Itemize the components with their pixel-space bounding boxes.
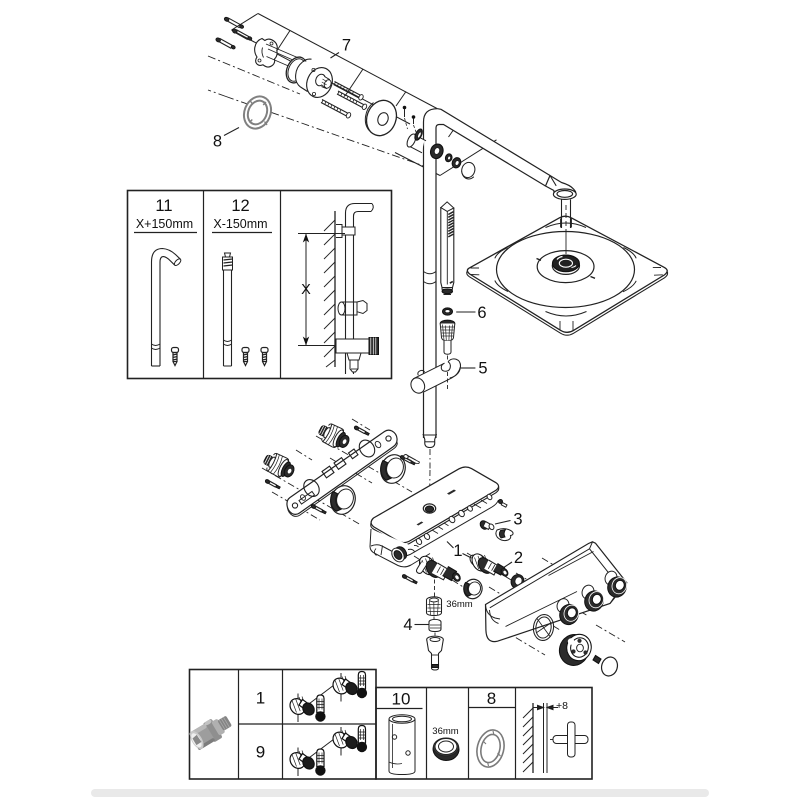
svg-text:+8: +8 (556, 700, 568, 712)
svg-text:10: 10 (392, 690, 411, 709)
svg-text:36mm: 36mm (446, 599, 472, 610)
svg-text:7: 7 (342, 37, 351, 55)
svg-text:4: 4 (403, 616, 412, 634)
svg-text:1: 1 (256, 689, 265, 708)
svg-text:2: 2 (514, 549, 523, 567)
svg-text:9: 9 (256, 743, 265, 762)
svg-text:12: 12 (231, 197, 249, 215)
svg-text:X+150mm: X+150mm (136, 217, 193, 231)
svg-text:1: 1 (453, 542, 462, 560)
svg-text:8: 8 (487, 689, 496, 708)
svg-text:3: 3 (513, 511, 522, 529)
svg-text:X: X (301, 282, 311, 298)
svg-text:11: 11 (155, 197, 172, 215)
svg-text:36mm: 36mm (432, 726, 458, 737)
svg-text:6: 6 (477, 304, 486, 322)
svg-text:5: 5 (478, 360, 487, 378)
svg-text:8: 8 (213, 133, 222, 151)
svg-text:X-150mm: X-150mm (213, 217, 267, 231)
